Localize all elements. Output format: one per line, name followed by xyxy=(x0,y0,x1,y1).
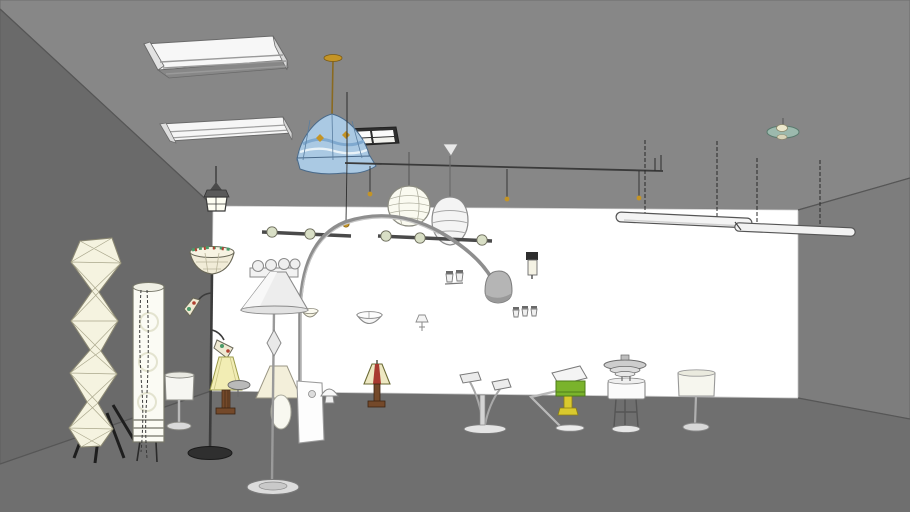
viewport-3d[interactable] xyxy=(0,0,910,512)
scene-canvas[interactable] xyxy=(0,0,910,512)
cylinder-paper-lamp[interactable] xyxy=(133,283,164,463)
white-display-panel[interactable] xyxy=(297,381,324,443)
box-sconce[interactable] xyxy=(526,252,538,279)
tiffany-skirt xyxy=(297,156,376,174)
right-wall[interactable] xyxy=(798,178,910,419)
triple-cup-sconce[interactable] xyxy=(513,306,537,317)
